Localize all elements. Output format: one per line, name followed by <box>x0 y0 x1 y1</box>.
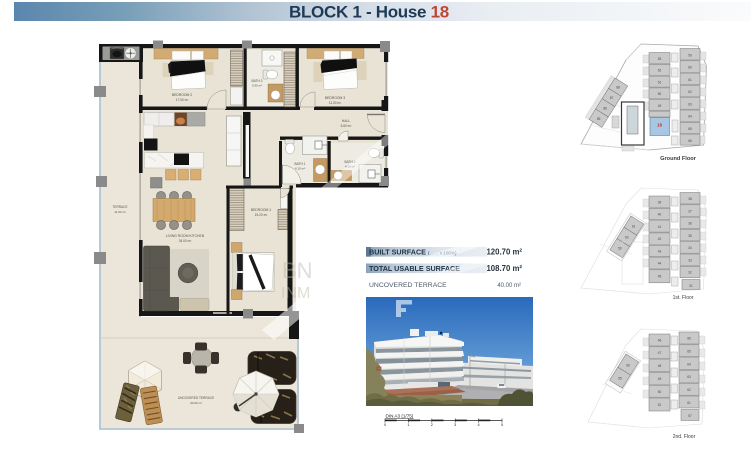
svg-text:47: 47 <box>658 351 662 355</box>
svg-text:BN: BN <box>282 258 313 283</box>
svg-text:120.70 m²: 120.70 m² <box>486 248 522 257</box>
svg-text:UNCOVERED TERRACE: UNCOVERED TERRACE <box>369 282 447 289</box>
svg-text:51: 51 <box>658 403 662 407</box>
svg-text:BEDROOM 2: BEDROOM 2 <box>172 93 192 97</box>
svg-text:38: 38 <box>688 197 692 201</box>
svg-text:65: 65 <box>688 127 692 131</box>
svg-text:1: 1 <box>407 423 409 427</box>
svg-text:53: 53 <box>658 57 662 61</box>
svg-text:41: 41 <box>658 225 662 229</box>
svg-text:57: 57 <box>688 414 692 418</box>
svg-text:108.70 m²: 108.70 m² <box>486 264 522 273</box>
svg-text:BLOCK 1 - House 18: BLOCK 1 - House 18 <box>289 3 449 22</box>
svg-text:50: 50 <box>658 390 662 394</box>
svg-text:64: 64 <box>687 363 691 367</box>
svg-text:64: 64 <box>688 115 692 119</box>
svg-text:15.20 m²: 15.20 m² <box>255 213 268 217</box>
svg-text:11.00 m²: 11.00 m² <box>114 210 126 214</box>
svg-text:59: 59 <box>618 246 622 250</box>
svg-text:45: 45 <box>658 275 662 279</box>
svg-text:62: 62 <box>688 90 692 94</box>
svg-text:86: 86 <box>603 106 607 110</box>
svg-text:61: 61 <box>687 401 691 405</box>
svg-text:88: 88 <box>616 86 620 90</box>
svg-text:87: 87 <box>610 96 614 100</box>
svg-text:40.00 m²: 40.00 m² <box>497 283 521 289</box>
svg-text:40: 40 <box>658 213 662 217</box>
svg-text:85: 85 <box>597 117 601 121</box>
svg-text:DIN A3 (1/75): DIN A3 (1/75) <box>386 414 414 419</box>
svg-text:63: 63 <box>687 375 691 379</box>
svg-text:66: 66 <box>687 337 691 341</box>
svg-text:44: 44 <box>658 262 662 266</box>
svg-text:3.90 m²: 3.90 m² <box>252 84 262 88</box>
svg-text:5.60 m²: 5.60 m² <box>341 124 352 128</box>
svg-text:66: 66 <box>626 363 630 367</box>
svg-text:51: 51 <box>658 81 662 85</box>
svg-text:11.00 m²: 11.00 m² <box>329 101 341 105</box>
svg-text:4.10 m²: 4.10 m² <box>295 167 305 171</box>
svg-text:50: 50 <box>658 92 662 96</box>
svg-text:4: 4 <box>478 423 480 427</box>
svg-text:52: 52 <box>658 69 662 73</box>
svg-text:BATH 3: BATH 3 <box>252 79 263 83</box>
svg-text:62: 62 <box>687 388 691 392</box>
svg-text:17.00 m²: 17.00 m² <box>176 98 189 102</box>
svg-text:65: 65 <box>618 376 622 380</box>
svg-text:63: 63 <box>688 103 692 107</box>
svg-text:60: 60 <box>688 66 692 70</box>
svg-text:46: 46 <box>658 339 662 343</box>
svg-text:2nd. Floor: 2nd. Floor <box>673 434 696 440</box>
svg-text:0: 0 <box>384 423 386 427</box>
svg-text:49: 49 <box>658 104 662 108</box>
svg-text:48: 48 <box>658 364 662 368</box>
svg-text:BATH 1: BATH 1 <box>295 162 306 166</box>
svg-text:39: 39 <box>658 201 662 205</box>
svg-text:TERRACE: TERRACE <box>112 205 127 209</box>
svg-text:3: 3 <box>454 423 456 427</box>
svg-text:INM: INM <box>281 285 310 302</box>
svg-text:UNCOVERED TERRACE: UNCOVERED TERRACE <box>178 396 214 400</box>
svg-text:18: 18 <box>657 123 662 128</box>
svg-text:34: 34 <box>688 246 692 250</box>
svg-text:32: 32 <box>688 271 692 275</box>
svg-text:61: 61 <box>632 224 636 228</box>
svg-text:BEDROOM 3: BEDROOM 3 <box>325 96 345 100</box>
svg-text:1st. Floor: 1st. Floor <box>673 295 694 301</box>
svg-text:59: 59 <box>688 54 692 58</box>
svg-text:65: 65 <box>687 350 691 354</box>
svg-text:49: 49 <box>658 377 662 381</box>
svg-text:31: 31 <box>689 284 693 288</box>
svg-text:66: 66 <box>688 139 692 143</box>
svg-text:HALL: HALL <box>342 119 351 123</box>
svg-text:61: 61 <box>688 78 692 82</box>
svg-text:60: 60 <box>625 235 629 239</box>
svg-text:43: 43 <box>658 250 662 254</box>
svg-text:LIVING ROOM KITCHEN: LIVING ROOM KITCHEN <box>166 234 205 238</box>
svg-text:BEDROOM 1: BEDROOM 1 <box>251 208 271 212</box>
svg-text:5: 5 <box>501 423 503 427</box>
svg-text:40.00 m²: 40.00 m² <box>190 401 202 405</box>
svg-text:37: 37 <box>688 210 692 214</box>
svg-text:36: 36 <box>688 222 692 226</box>
svg-text:2: 2 <box>431 423 433 427</box>
svg-text:Ground Floor: Ground Floor <box>660 156 697 162</box>
svg-text:35: 35 <box>688 234 692 238</box>
svg-text:33: 33 <box>688 259 692 263</box>
svg-text:34.00 m²: 34.00 m² <box>179 239 192 243</box>
svg-text:42: 42 <box>658 237 662 241</box>
